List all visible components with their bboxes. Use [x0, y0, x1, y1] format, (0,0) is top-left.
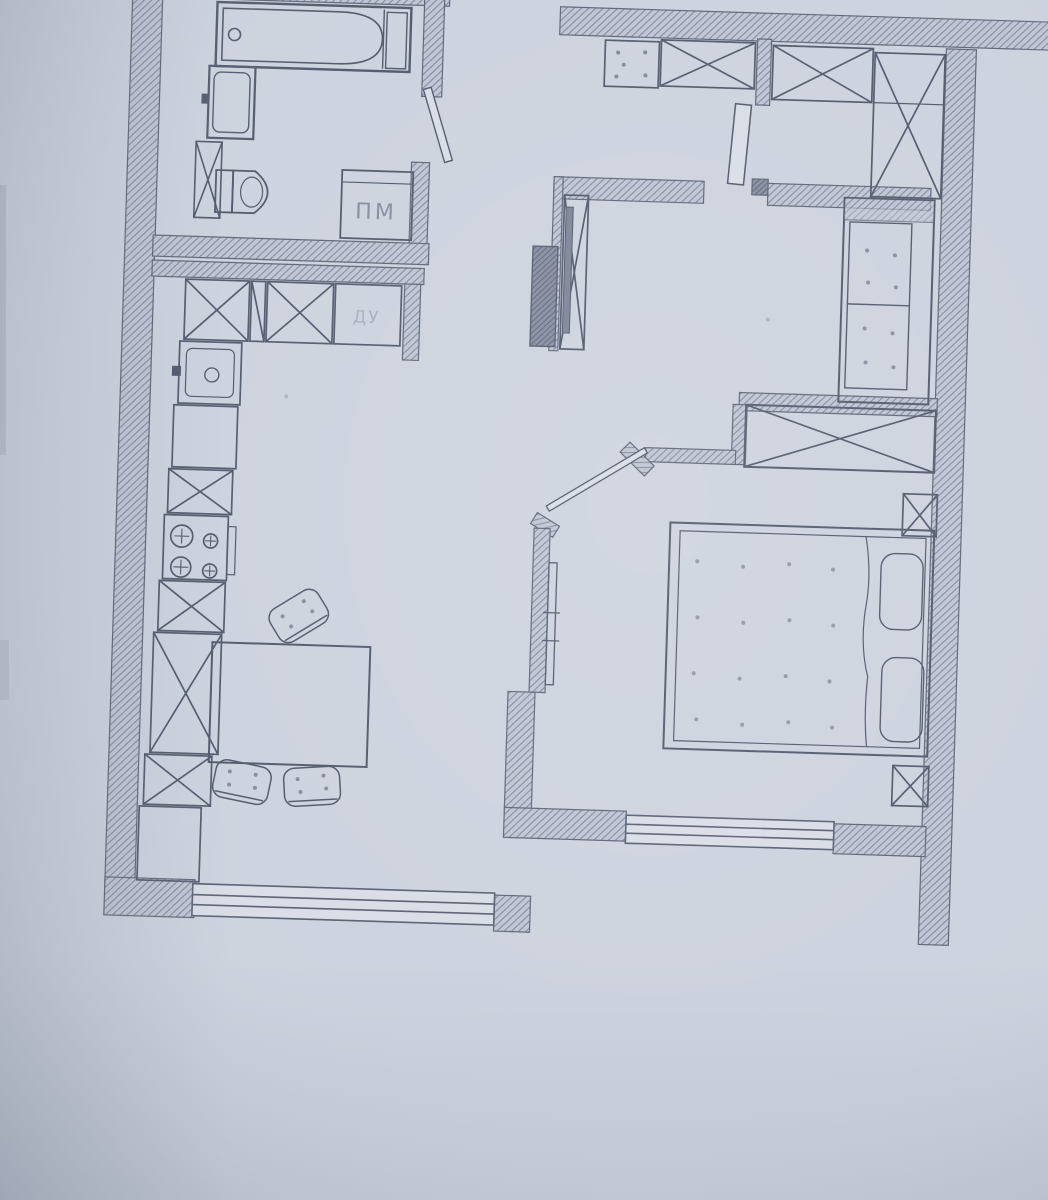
floorplan-svg: ПМ ДУ	[0, 0, 1048, 1200]
bottom-shade-overlay	[0, 0, 1048, 1200]
scanned-floorplan-page: ПМ ДУ	[0, 0, 1048, 1200]
